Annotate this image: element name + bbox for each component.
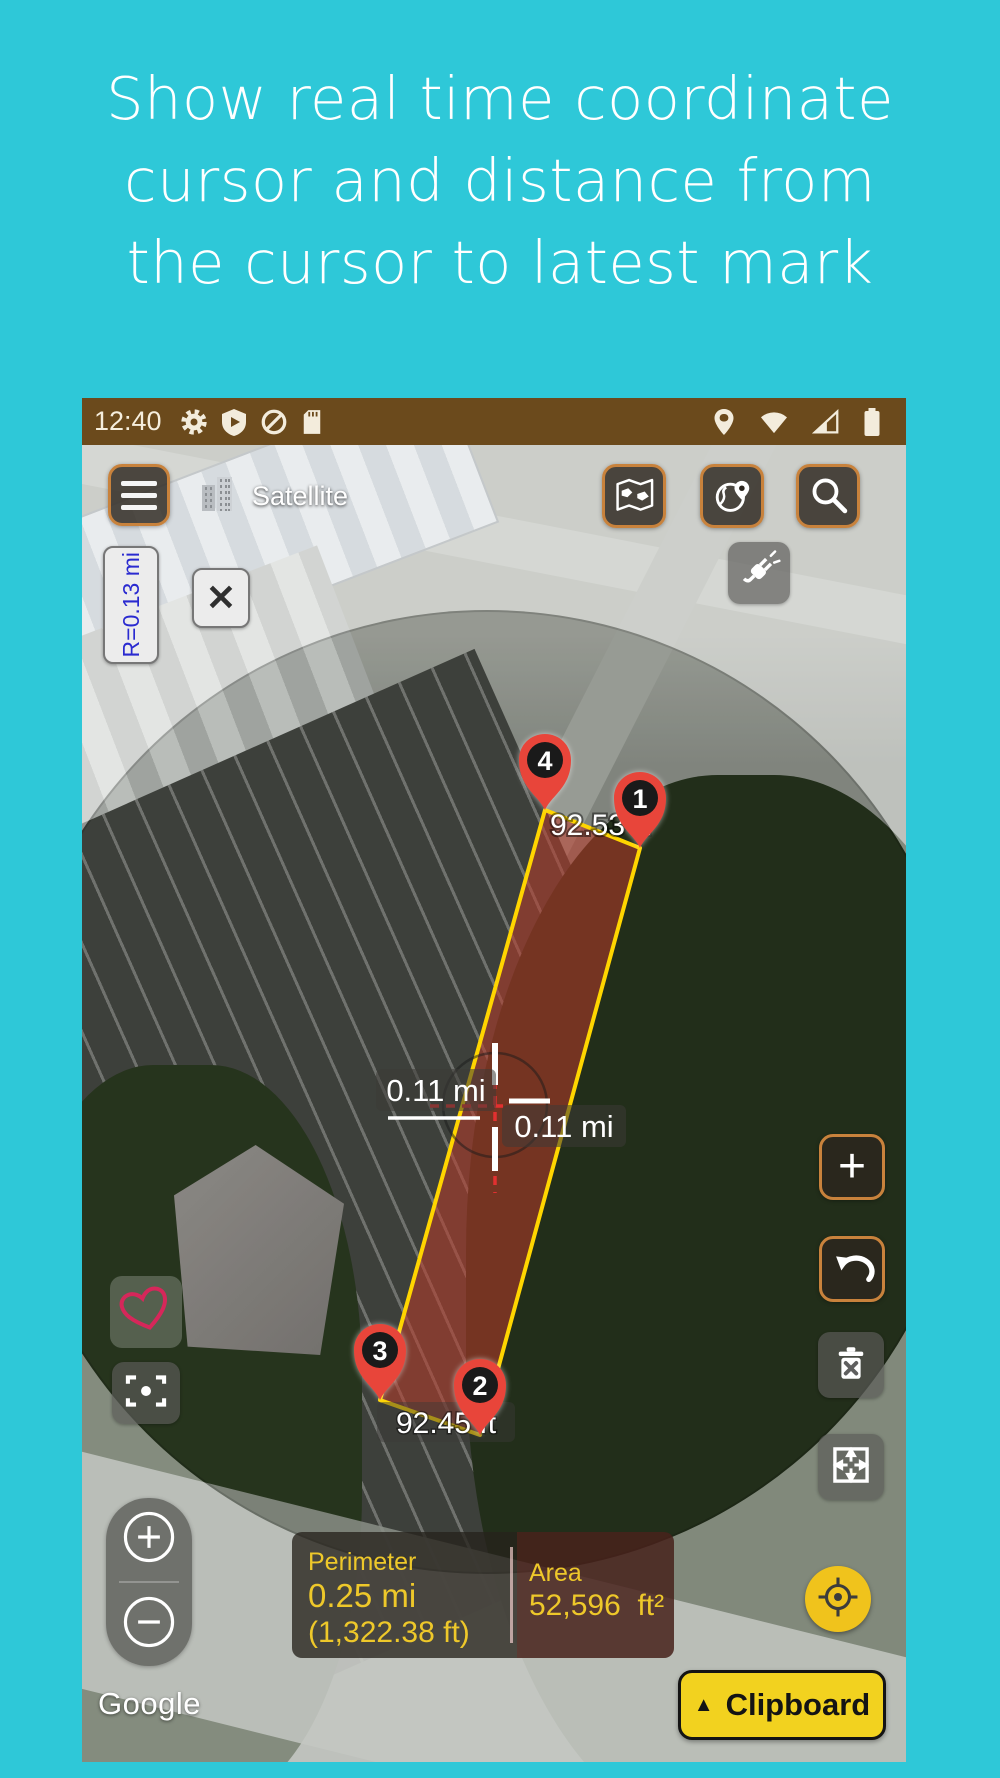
plug-tools-button[interactable] bbox=[728, 542, 790, 604]
close-measure-button[interactable]: ✕ bbox=[192, 568, 250, 628]
panel-divider bbox=[510, 1547, 513, 1643]
marker-number: 3 bbox=[372, 1336, 387, 1366]
radius-badge: R=0.13 mi bbox=[103, 546, 159, 664]
close-icon: ✕ bbox=[206, 577, 236, 619]
expand-arrows-icon bbox=[829, 1443, 873, 1492]
measurement-results-panel: Perimeter 0.25 mi (1,322.38 ft) Area 52,… bbox=[292, 1532, 674, 1658]
do-not-disturb-icon bbox=[260, 408, 288, 436]
map-style-button[interactable] bbox=[602, 464, 666, 528]
location-icon bbox=[712, 407, 736, 437]
marker-number: 2 bbox=[472, 1371, 487, 1401]
heart-icon bbox=[115, 1281, 178, 1343]
radius-value: R=0.13 mi bbox=[118, 552, 145, 657]
area-value: 52,596 ft² bbox=[529, 1588, 674, 1624]
cursor-distance-text: 0.11 mi bbox=[514, 1109, 613, 1144]
cursor-distance-label-right: 0.11 mi bbox=[502, 1105, 626, 1147]
menu-button[interactable] bbox=[108, 464, 170, 526]
zoom-in-button[interactable] bbox=[106, 1498, 192, 1581]
sd-card-icon bbox=[301, 408, 323, 436]
status-time: 12:40 bbox=[94, 406, 162, 437]
chevron-up-icon: ▲ bbox=[694, 1694, 714, 1717]
map-layer-label[interactable]: Satellite bbox=[198, 474, 458, 518]
plug-icon bbox=[737, 549, 781, 598]
undo-button[interactable] bbox=[819, 1236, 885, 1302]
map-zoom-control bbox=[106, 1498, 192, 1666]
cursor-distance-text: 0.11 mi bbox=[386, 1073, 485, 1108]
cell-signal-icon bbox=[812, 409, 840, 435]
hamburger-icon bbox=[121, 481, 157, 486]
undo-icon bbox=[829, 1247, 875, 1292]
area-unit: ft² bbox=[637, 1589, 664, 1622]
gear-icon bbox=[180, 408, 208, 436]
clipboard-button[interactable]: ▲ Clipboard bbox=[678, 1670, 886, 1740]
status-bar: 12:40 bbox=[82, 398, 906, 445]
perimeter-value-ft: (1,322.38 ft) bbox=[308, 1615, 508, 1651]
globe-locate-button[interactable] bbox=[700, 464, 764, 528]
google-logo: Google bbox=[98, 1686, 201, 1722]
search-icon bbox=[806, 472, 850, 521]
trash-icon bbox=[830, 1342, 872, 1389]
delete-all-button[interactable] bbox=[818, 1332, 884, 1398]
center-focus-button[interactable] bbox=[112, 1362, 180, 1424]
title-line-2: cursor and distance from bbox=[0, 140, 1000, 222]
cursor-distance-label-left: 0.11 mi bbox=[376, 1069, 496, 1118]
buildings-icon bbox=[198, 473, 240, 520]
page-title: Show real time coordinate cursor and dis… bbox=[0, 58, 1000, 304]
zoom-out-icon bbox=[120, 1593, 178, 1656]
title-line-1: Show real time coordinate bbox=[0, 58, 1000, 140]
perimeter-value-mi: 0.25 mi bbox=[308, 1577, 508, 1615]
target-icon bbox=[815, 1574, 861, 1625]
perimeter-label: Perimeter bbox=[308, 1547, 508, 1577]
globe-pin-icon bbox=[709, 471, 755, 522]
shield-play-icon bbox=[221, 408, 247, 436]
phone-screenshot: 12:40 bbox=[82, 398, 906, 1762]
folded-map-icon bbox=[611, 474, 657, 519]
perimeter-section: Perimeter 0.25 mi (1,322.38 ft) bbox=[292, 1539, 508, 1651]
map-layer-name: Satellite bbox=[252, 481, 348, 512]
status-right-icons bbox=[712, 407, 894, 437]
my-location-button[interactable] bbox=[805, 1566, 871, 1632]
wifi-icon bbox=[759, 409, 789, 435]
battery-icon bbox=[863, 407, 881, 437]
marker-number: 4 bbox=[537, 746, 552, 776]
area-number: 52,596 bbox=[529, 1589, 621, 1622]
clipboard-label: Clipboard bbox=[726, 1687, 871, 1723]
search-button[interactable] bbox=[796, 464, 860, 528]
zoom-out-button[interactable] bbox=[106, 1583, 192, 1666]
area-section: Area 52,596 ft² bbox=[517, 1532, 674, 1658]
zoom-in-icon bbox=[120, 1508, 178, 1571]
add-point-button[interactable]: + bbox=[819, 1134, 885, 1200]
map-marker-4[interactable]: 4 bbox=[519, 734, 571, 810]
focus-icon bbox=[124, 1372, 168, 1415]
area-label: Area bbox=[529, 1558, 674, 1588]
expand-fit-button[interactable] bbox=[818, 1434, 884, 1500]
favorite-button[interactable] bbox=[110, 1276, 182, 1348]
marker-number: 1 bbox=[632, 784, 647, 814]
title-line-3: the cursor to latest mark bbox=[0, 222, 1000, 304]
